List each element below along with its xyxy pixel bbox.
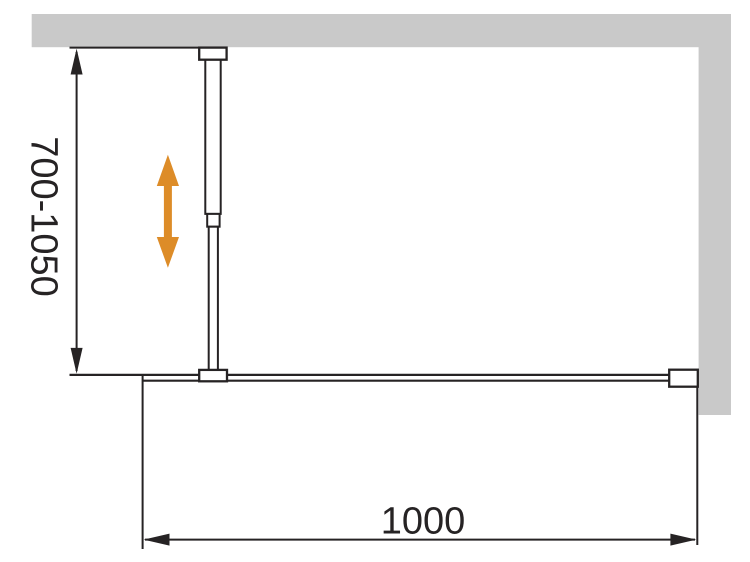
svg-text:1000: 1000	[381, 501, 466, 543]
svg-text:700-1050: 700-1050	[23, 136, 65, 297]
